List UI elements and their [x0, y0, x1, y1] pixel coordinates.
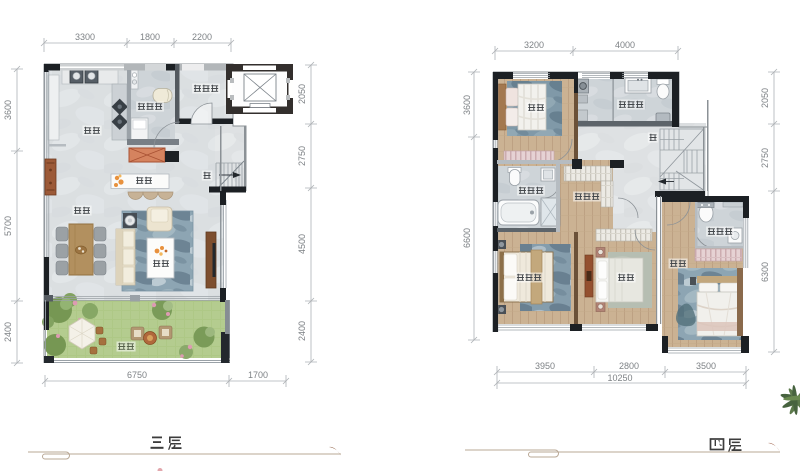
- svg-text:4500: 4500: [297, 234, 307, 254]
- svg-text:3200: 3200: [524, 40, 544, 50]
- svg-text:2800: 2800: [619, 361, 639, 371]
- svg-text:3600: 3600: [3, 100, 13, 120]
- svg-text:2750: 2750: [760, 148, 770, 168]
- svg-text:6750: 6750: [127, 370, 147, 380]
- svg-text:2400: 2400: [297, 321, 307, 341]
- svg-text:2750: 2750: [297, 146, 307, 166]
- svg-text:1800: 1800: [140, 32, 160, 42]
- svg-text:4000: 4000: [615, 40, 635, 50]
- svg-text:1700: 1700: [248, 370, 268, 380]
- svg-text:10250: 10250: [607, 373, 632, 383]
- svg-text:2050: 2050: [760, 88, 770, 108]
- svg-text:3300: 3300: [75, 32, 95, 42]
- svg-text:5700: 5700: [3, 216, 13, 236]
- svg-text:2050: 2050: [297, 84, 307, 104]
- svg-text:2400: 2400: [3, 322, 13, 342]
- svg-text:6300: 6300: [760, 262, 770, 282]
- svg-text:3600: 3600: [462, 95, 472, 115]
- svg-text:2200: 2200: [192, 32, 212, 42]
- svg-text:3950: 3950: [535, 361, 555, 371]
- svg-text:3500: 3500: [696, 361, 716, 371]
- svg-text:6600: 6600: [462, 228, 472, 248]
